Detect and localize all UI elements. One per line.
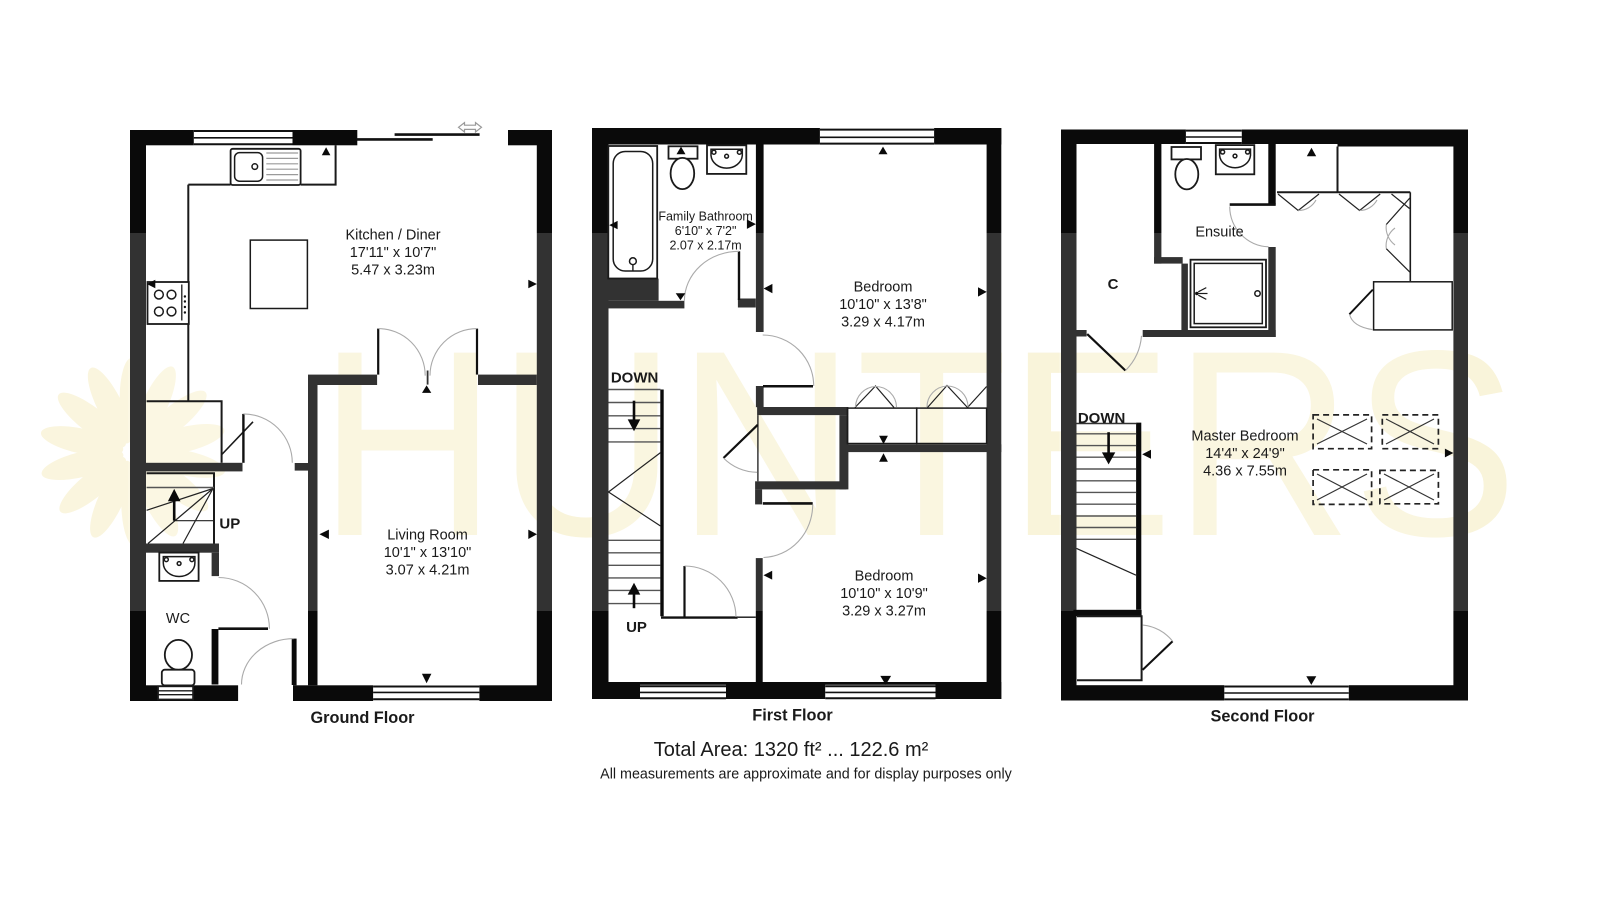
svg-text:17'11" x 10'7": 17'11" x 10'7" bbox=[350, 245, 437, 261]
svg-text:DOWN: DOWN bbox=[611, 369, 659, 386]
svg-text:Family Bathroom: Family Bathroom bbox=[658, 210, 752, 224]
svg-text:WC: WC bbox=[166, 611, 190, 627]
svg-text:Total Area: 1320 ft² ... 122.6: Total Area: 1320 ft² ... 122.6 m² bbox=[654, 739, 929, 761]
svg-text:10'10" x 10'9": 10'10" x 10'9" bbox=[840, 586, 928, 602]
svg-text:5.47 x 3.23m: 5.47 x 3.23m bbox=[351, 263, 435, 279]
svg-text:3.29 x 4.17m: 3.29 x 4.17m bbox=[841, 315, 925, 331]
svg-text:UP: UP bbox=[219, 516, 240, 533]
svg-text:Bedroom: Bedroom bbox=[855, 569, 914, 585]
svg-text:Ensuite: Ensuite bbox=[1195, 225, 1243, 241]
svg-text:3.07 x 4.21m: 3.07 x 4.21m bbox=[386, 563, 470, 579]
svg-text:10'1" x 13'10": 10'1" x 13'10" bbox=[384, 545, 472, 561]
svg-text:14'4" x 24'9": 14'4" x 24'9" bbox=[1205, 446, 1285, 462]
svg-text:Master Bedroom: Master Bedroom bbox=[1191, 429, 1298, 445]
svg-text:Ground Floor: Ground Floor bbox=[311, 709, 416, 727]
svg-text:Kitchen / Diner: Kitchen / Diner bbox=[345, 228, 440, 244]
svg-text:Bedroom: Bedroom bbox=[854, 280, 913, 296]
svg-text:6'10" x 7'2": 6'10" x 7'2" bbox=[675, 224, 737, 238]
svg-text:4.36 x 7.55m: 4.36 x 7.55m bbox=[1203, 464, 1287, 480]
svg-text:C: C bbox=[1108, 276, 1119, 293]
svg-text:UP: UP bbox=[626, 619, 647, 636]
svg-text:10'10" x 13'8": 10'10" x 13'8" bbox=[839, 297, 927, 313]
svg-text:Living Room: Living Room bbox=[387, 528, 468, 544]
svg-text:2.07 x 2.17m: 2.07 x 2.17m bbox=[669, 239, 741, 253]
svg-text:First Floor: First Floor bbox=[752, 707, 833, 725]
svg-text:DOWN: DOWN bbox=[1078, 410, 1126, 427]
svg-text:3.29 x 3.27m: 3.29 x 3.27m bbox=[842, 604, 926, 620]
svg-text:All measurements are approxima: All measurements are approximate and for… bbox=[600, 767, 1012, 783]
svg-text:Second Floor: Second Floor bbox=[1210, 708, 1315, 726]
